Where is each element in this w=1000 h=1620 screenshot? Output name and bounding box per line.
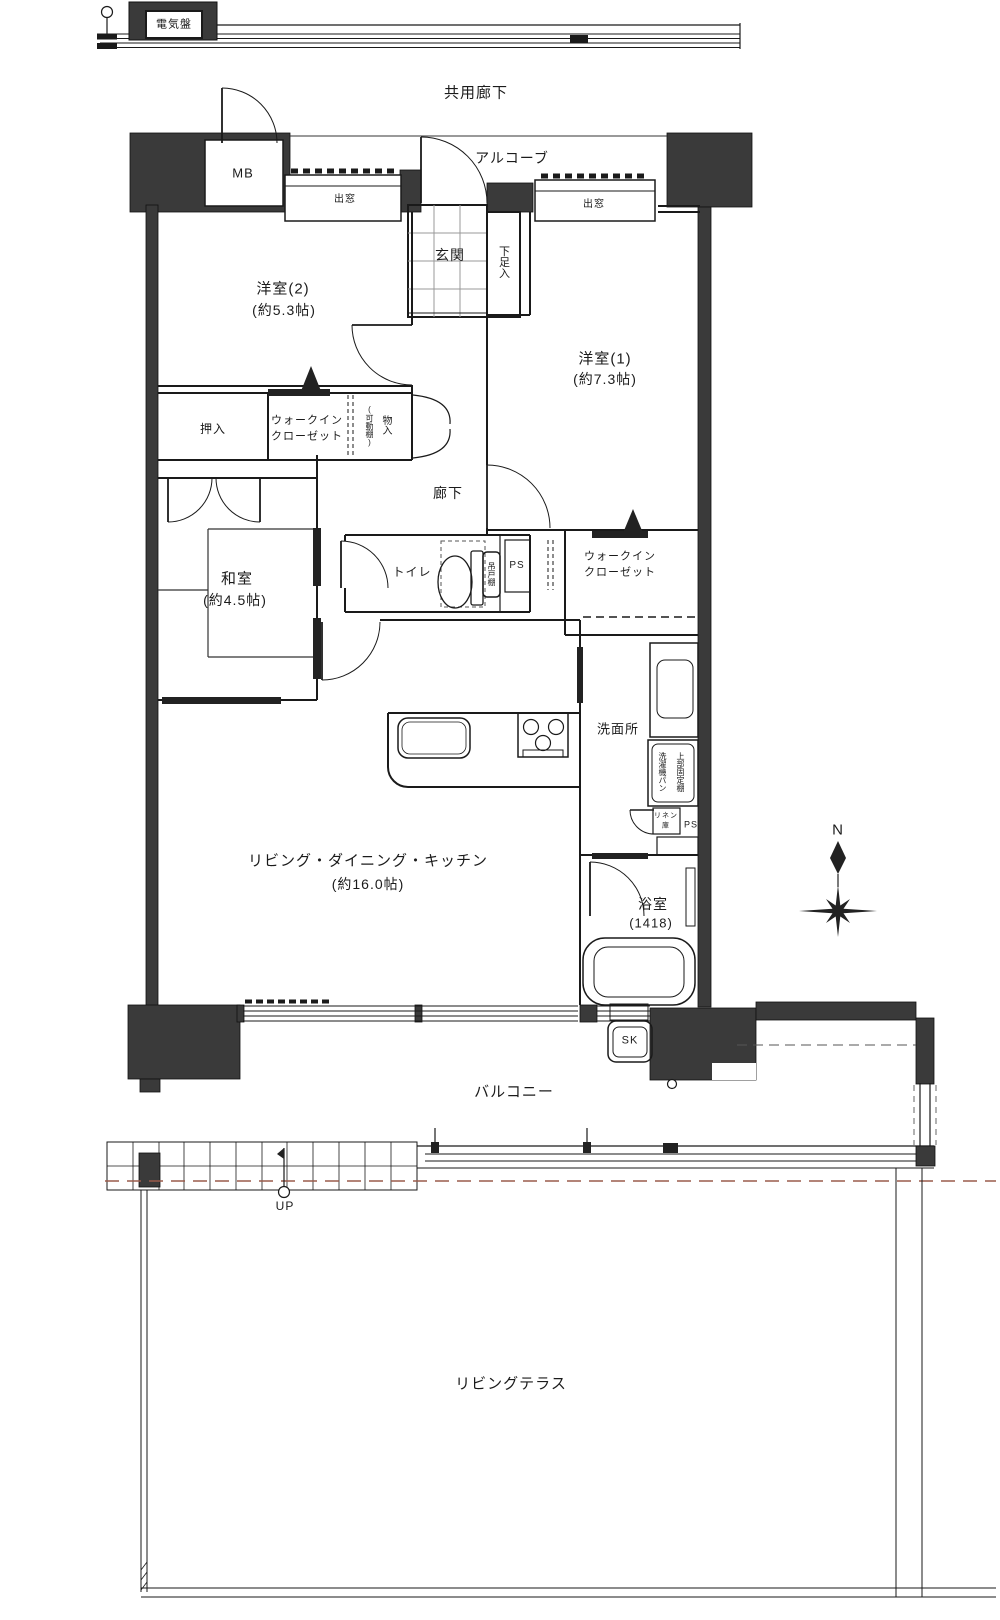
label-slop-sink: SK <box>622 1036 639 1047</box>
label-ps2: PS <box>684 821 698 830</box>
label-bed: 洋室(2) <box>256 282 309 297</box>
label-hanging-shelf: 吊戸棚 <box>487 562 495 586</box>
label-living-terrace: リビングテラス <box>455 1377 567 1392</box>
label-wic2-line2: クローゼット <box>584 568 656 579</box>
label-meter-box: MB <box>232 167 254 180</box>
label-hallway: 廊下 <box>433 486 463 500</box>
label-bedroom1-size: (約7.3帖) <box>573 372 637 386</box>
label-oshiire: 押入 <box>200 423 226 435</box>
floorplan: 電気盤 共用廊下 MB 出窓 アルコーブ 出窓 玄関 下足入 洋室(2) (約5… <box>0 0 1000 1620</box>
compass-icon <box>799 841 877 937</box>
label-north: N <box>832 823 844 838</box>
label-alcove: アルコーブ <box>475 151 549 165</box>
label-wic2-line1: ウォークイン <box>584 552 656 563</box>
label-bedroom1-name: 洋室(1) <box>578 352 631 367</box>
label-bay-window-1: 出窓 <box>334 195 356 205</box>
label-washroom: 洗面所 <box>597 723 639 736</box>
label-bath-name: 浴室 <box>638 897 668 911</box>
label-storage-note: (可動棚) <box>365 405 373 447</box>
label-storage: 物入 <box>380 415 390 435</box>
label-wic1-line2: クローゼット <box>271 432 343 443</box>
label-balcony: バルコニー <box>474 1085 554 1100</box>
label-shoe-cabinet: 下足入 <box>498 246 509 279</box>
label-ldk-name: リビング・ダイニング・キッチン <box>248 854 488 869</box>
label-up: UP <box>276 1200 295 1212</box>
label-common-corridor: 共用廊下 <box>444 86 508 101</box>
terrace-boundary <box>141 1168 996 1597</box>
label-bath-size: (1418) <box>629 917 673 930</box>
label-upper-shelf: 上部固定棚 <box>676 752 684 792</box>
label-bedroom2-size: (約5.3帖) <box>252 303 316 317</box>
label-laundry-pan: 洗濯機パン <box>658 752 666 792</box>
label-wic1-line1: ウォークイン <box>271 416 343 427</box>
label-entrance: 玄関 <box>435 248 465 262</box>
label-bay-window-2: 出窓 <box>583 200 605 210</box>
label-linen-line2: 庫 <box>662 823 670 830</box>
label-japanese-room-name: 和室 <box>221 572 253 587</box>
door-markers <box>301 366 643 533</box>
label-linen-line1: リネン <box>654 813 678 820</box>
interior-walls <box>158 205 916 1089</box>
label-toilet: トイレ <box>392 566 431 578</box>
label-electrical-panel: 電気盤 <box>156 20 192 31</box>
label-japanese-room-size: (約4.5帖) <box>203 593 267 607</box>
label-ps1: PS <box>509 561 524 571</box>
label-ldk-size: (約16.0帖) <box>332 877 405 891</box>
